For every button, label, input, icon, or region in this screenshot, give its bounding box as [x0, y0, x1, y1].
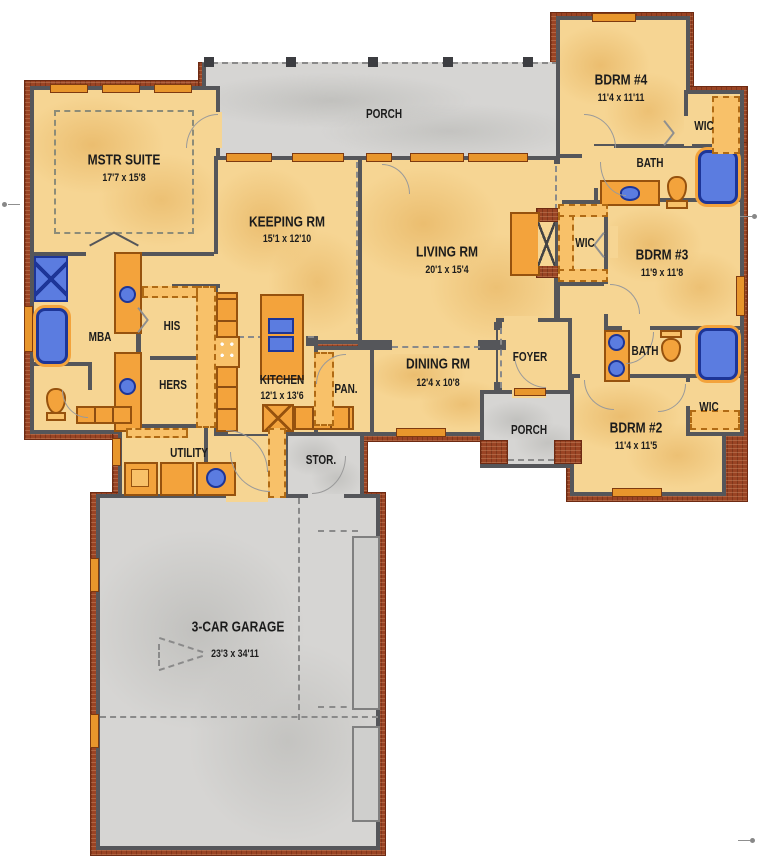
room-garage: [96, 494, 380, 850]
utility-shelf: [126, 428, 188, 438]
range: [214, 336, 240, 368]
closet-shelf: [712, 96, 740, 154]
closet-shelf: [558, 204, 608, 217]
ceiling-break-line: [356, 162, 359, 334]
window: [736, 276, 745, 316]
porch-column: [286, 57, 296, 67]
room-label: WIC: [694, 119, 713, 133]
dryer: [160, 462, 194, 496]
room-dims: 20'1 x 15'4: [425, 264, 468, 276]
porch-column: [204, 57, 214, 67]
bathtub: [698, 150, 738, 204]
washer-drum: [131, 469, 149, 487]
porch-column-brick: [480, 440, 508, 464]
room-label: BDRM #2: [610, 420, 663, 437]
front-door-sill: [514, 388, 546, 396]
room-label: BDRM #3: [636, 247, 689, 264]
dimension-tick: [738, 840, 750, 841]
wall-stub: [358, 340, 392, 350]
room-label: MSTR SUITE: [88, 152, 161, 169]
window: [90, 558, 99, 592]
room-label: KITCHEN: [260, 373, 304, 387]
room-dims: 17'7 x 15'8: [102, 172, 145, 184]
ceiling-break-line: [392, 346, 480, 349]
car-turn-symbol: [158, 644, 161, 666]
ceiling-break-line: [500, 328, 503, 388]
fireplace-firebox: [538, 222, 558, 266]
window: [592, 13, 636, 22]
door-opening: [684, 116, 692, 146]
room-label: FOYER: [513, 350, 547, 364]
sink: [119, 286, 136, 303]
sink: [119, 378, 136, 395]
room-label: STOR.: [306, 453, 336, 467]
floor-plan: MSTR SUITE 17'7 x 15'8 KEEPING RM 15'1 x…: [0, 0, 760, 857]
porch-column: [523, 57, 533, 67]
room-label: PORCH: [366, 107, 402, 121]
bathtub: [698, 328, 738, 380]
porch-column-brick: [554, 440, 582, 464]
room-dims: 11'4 x 11'5: [615, 440, 657, 452]
toilet-tank: [660, 330, 682, 338]
sink: [608, 360, 625, 377]
garage-header-dashed: [318, 530, 358, 533]
window: [468, 153, 528, 162]
window: [396, 428, 446, 437]
sink: [608, 334, 625, 351]
window: [102, 84, 140, 93]
closet-shelf: [196, 286, 216, 428]
dimension-tick: [750, 838, 755, 843]
room-label: PORCH: [511, 423, 547, 437]
garage-door: [352, 726, 380, 822]
garage-bay-divider: [298, 498, 301, 720]
porch-column: [443, 57, 453, 67]
room-label: WIC: [699, 400, 718, 414]
closet-shelf: [558, 269, 608, 282]
dimension-tick: [752, 214, 757, 219]
door-opening: [308, 494, 344, 502]
storage-shelf: [268, 428, 286, 498]
window: [226, 153, 272, 162]
window: [50, 84, 88, 93]
room-label: BDRM #4: [595, 72, 648, 89]
garage-door: [352, 536, 380, 710]
window: [292, 153, 344, 162]
dimension-tick: [8, 204, 20, 205]
wall-segment: [88, 366, 92, 390]
room-dims: 15'1 x 12'10: [263, 233, 311, 245]
shower: [34, 256, 68, 302]
room-label: WIC: [575, 236, 594, 250]
window: [366, 153, 392, 162]
room-label: HERS: [159, 378, 187, 392]
porch-column: [368, 57, 378, 67]
room-dims: 11'4 x 11'11: [598, 92, 645, 104]
room-label: BATH: [631, 344, 658, 358]
room-label: LIVING RM: [416, 244, 478, 261]
room-label: 3-CAR GARAGE: [192, 619, 285, 636]
door-opening: [214, 254, 222, 284]
window: [154, 84, 192, 93]
room-label: UTILITY: [170, 446, 208, 460]
porch-edge-dashed: [508, 459, 554, 462]
window: [410, 153, 464, 162]
room-label: MBA: [89, 330, 112, 344]
bathtub: [36, 308, 68, 364]
room-label: PAN.: [334, 382, 357, 396]
room-dims: 12'1 x 13'6: [260, 390, 303, 402]
room-dims: 23'3 x 34'11: [211, 648, 259, 660]
room-label: HIS: [164, 319, 181, 333]
utility-sink: [206, 468, 226, 488]
door-opening: [610, 226, 618, 258]
window: [112, 438, 121, 466]
window: [612, 488, 662, 497]
dimension-tick: [740, 216, 752, 217]
room-label: KEEPING RM: [249, 214, 325, 231]
cased-opening: [504, 316, 538, 326]
closet-shelf: [142, 286, 198, 298]
dimension-tick: [2, 202, 7, 207]
window: [90, 714, 99, 748]
room-dims: 11'9 x 11'8: [641, 267, 683, 279]
fireplace-hearth: [510, 212, 540, 276]
garage-bay-divider: [100, 716, 378, 719]
room-dims: 12'4 x 10'8: [416, 377, 459, 389]
window: [24, 306, 33, 352]
door-opening: [686, 382, 694, 406]
sink-basin: [268, 318, 294, 334]
sink-basin: [268, 336, 294, 352]
room-label: BATH: [636, 156, 663, 170]
room-label: DINING RM: [406, 356, 470, 373]
